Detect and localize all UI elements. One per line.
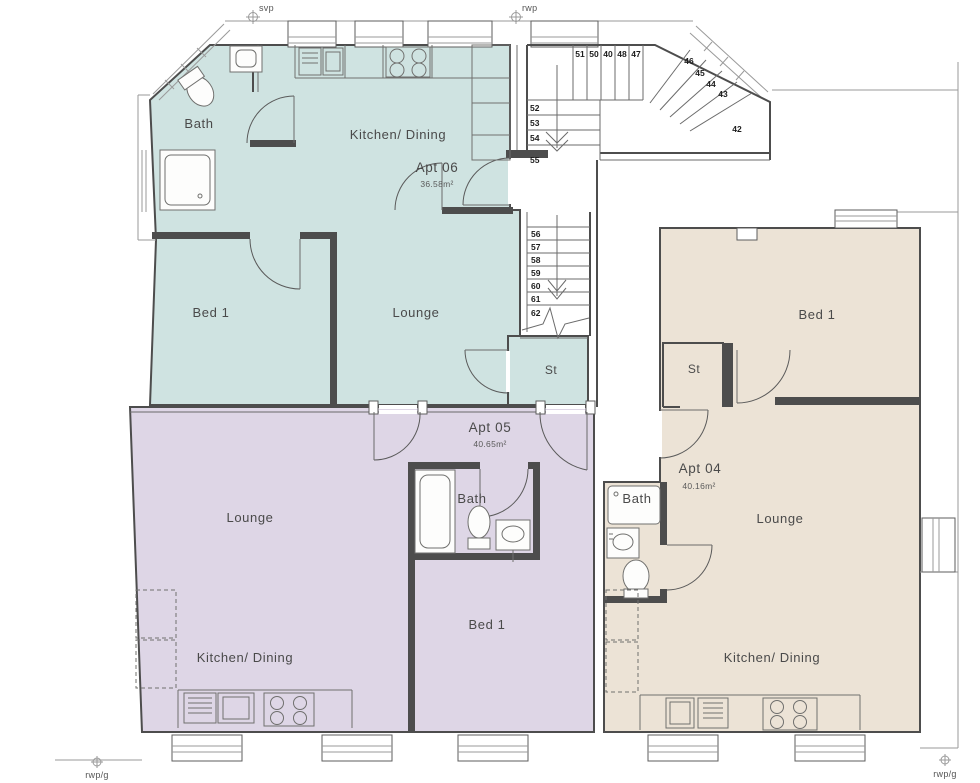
top-windows <box>288 21 598 47</box>
room-label-store-apt06: St <box>545 363 557 377</box>
stair-number: 56 <box>531 229 541 239</box>
toilet <box>623 560 649 598</box>
window <box>458 735 528 761</box>
room-label-kitchen-apt04: Kitchen/ Dining <box>724 650 820 665</box>
stair-number: 46 <box>684 56 694 66</box>
apartment-area-apt05: 40.65m² <box>473 439 506 449</box>
bathtub <box>415 470 455 553</box>
wall <box>330 232 337 405</box>
room-label-bed-apt05: Bed 1 <box>469 617 506 632</box>
stair-number: 45 <box>695 68 705 78</box>
room-label-bath-apt06: Bath <box>184 116 213 131</box>
window <box>795 735 865 761</box>
stair-number: 42 <box>732 124 742 134</box>
stair-number: 43 <box>718 89 728 99</box>
window <box>355 21 403 47</box>
stair-number: 54 <box>530 133 540 143</box>
window <box>172 735 242 761</box>
rwp-g-marker-right: rwp/g <box>933 754 957 779</box>
room-label-kitchen-apt05: Kitchen/ Dining <box>197 650 293 665</box>
floor-plan-drawing: 51 50 40 48 47 46 45 44 43 42 52 53 54 5… <box>0 0 980 783</box>
window <box>531 21 598 47</box>
wall-stub <box>250 140 296 147</box>
wall <box>408 462 480 469</box>
stair-number: 40 <box>603 49 613 59</box>
stair-number: 47 <box>631 49 641 59</box>
bottom-windows <box>172 735 865 761</box>
wall <box>408 462 415 732</box>
door-jamb <box>536 401 545 414</box>
stair-number: 44 <box>706 79 716 89</box>
apartment-label-apt04: Apt 04 <box>679 461 722 476</box>
stair-direction-arrow-upper <box>546 65 568 151</box>
apartment-area-apt06: 36.58m² <box>420 179 453 189</box>
side-window-left <box>142 150 146 212</box>
window <box>922 518 955 572</box>
stair-number: 58 <box>531 255 541 265</box>
stair-number: 51 <box>575 49 585 59</box>
wash-basin <box>230 46 262 72</box>
window <box>648 735 718 761</box>
apartment-fills <box>130 45 920 732</box>
stair-number: 61 <box>531 294 541 304</box>
svp-label: svp <box>259 3 274 13</box>
stair-number: 50 <box>589 49 599 59</box>
floor-plan: 51 50 40 48 47 46 45 44 43 42 52 53 54 5… <box>0 0 980 783</box>
toilet <box>468 506 490 549</box>
window <box>428 21 492 47</box>
apt05-floor <box>130 407 594 732</box>
wall <box>660 482 667 545</box>
window <box>835 210 897 228</box>
window <box>322 735 392 761</box>
room-label-store-apt04: St <box>688 362 700 376</box>
apartment-area-apt04: 40.16m² <box>682 481 715 491</box>
rwp-g-label-right: rwp/g <box>933 769 957 779</box>
stair-number: 60 <box>531 281 541 291</box>
room-label-kitchen-apt06: Kitchen/ Dining <box>350 127 446 142</box>
corner-window-top-right <box>690 26 768 98</box>
wall <box>775 397 920 405</box>
wall <box>408 553 540 560</box>
stair-treads-upper <box>527 45 643 160</box>
stair-number: 48 <box>617 49 627 59</box>
stair-number: 52 <box>530 103 540 113</box>
room-label-lounge-apt05: Lounge <box>227 510 274 525</box>
wall <box>723 343 733 407</box>
stair-number: 57 <box>531 242 541 252</box>
room-label-bath-apt05: Bath <box>457 491 486 506</box>
wash-basin <box>607 528 639 558</box>
stair-number: 59 <box>531 268 541 278</box>
shower-tray <box>160 150 215 210</box>
door-jamb <box>418 401 427 414</box>
wall <box>152 232 250 239</box>
wall <box>533 462 540 560</box>
room-label-bed-apt06: Bed 1 <box>193 305 230 320</box>
wall-stub <box>506 150 548 158</box>
rwp-g-label-left: rwp/g <box>85 770 109 780</box>
room-label-lounge-apt06: Lounge <box>393 305 440 320</box>
stair-winders <box>650 50 752 131</box>
room-label-lounge-apt04: Lounge <box>757 511 804 526</box>
stair-number: 62 <box>531 308 541 318</box>
wall-notch <box>737 228 757 240</box>
rwp-label: rwp <box>522 3 537 13</box>
wall <box>442 207 513 214</box>
stair-number: 53 <box>530 118 540 128</box>
window <box>288 21 336 47</box>
stair-number: 55 <box>530 155 540 165</box>
apartment-label-apt05: Apt 05 <box>469 420 512 435</box>
room-label-bath-apt04: Bath <box>622 491 651 506</box>
room-label-bed-apt04: Bed 1 <box>799 307 836 322</box>
apartment-label-apt06: Apt 06 <box>416 160 459 175</box>
